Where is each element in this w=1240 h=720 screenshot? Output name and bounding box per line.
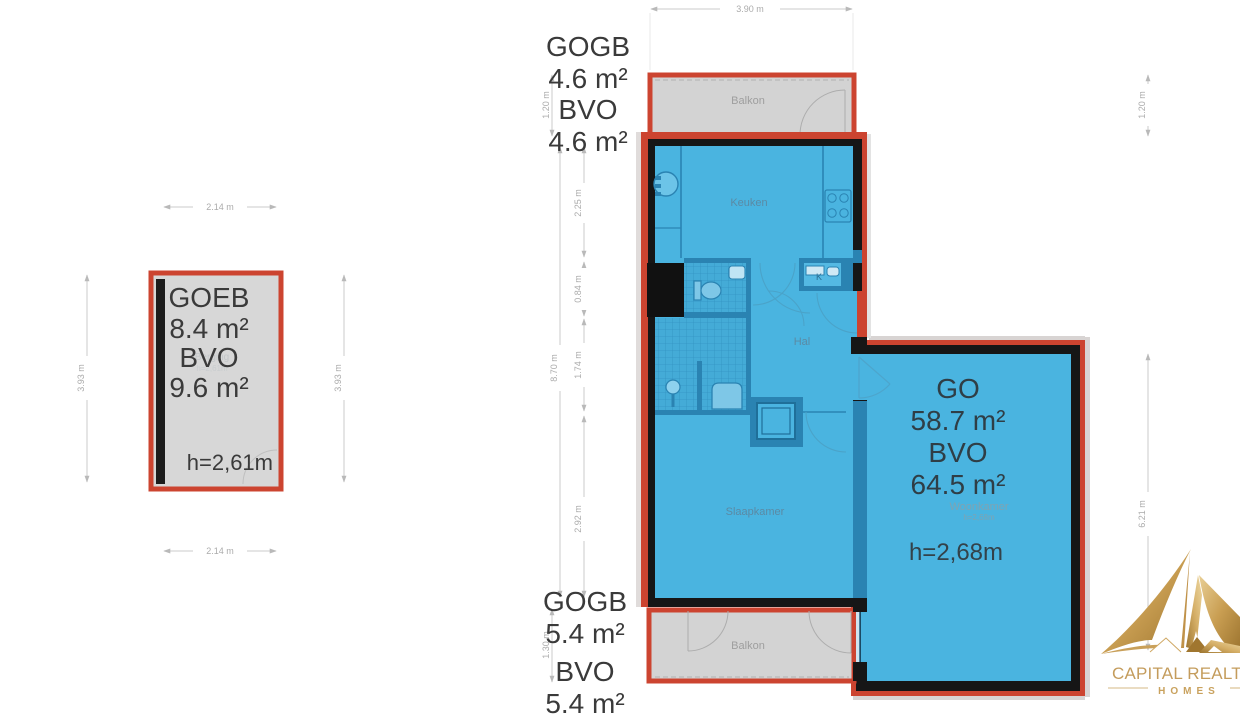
svg-text:BVO: BVO — [179, 342, 238, 373]
svg-text:BVO: BVO — [928, 437, 987, 468]
svg-text:Slaapkamer: Slaapkamer — [726, 506, 785, 518]
svg-text:Balkon: Balkon — [731, 95, 765, 107]
svg-text:6.21 m: 6.21 m — [1137, 500, 1147, 528]
svg-text:4.6 m²: 4.6 m² — [548, 126, 627, 157]
svg-text:GOGB: GOGB — [546, 31, 630, 62]
svg-text:Hal: Hal — [794, 336, 811, 348]
svg-text:8.4 m²: 8.4 m² — [169, 313, 248, 344]
svg-text:h=2,68m: h=2,68m — [909, 539, 1003, 566]
svg-text:Balkon: Balkon — [731, 640, 765, 652]
svg-text:K: K — [816, 272, 822, 282]
svg-text:CAPITAL REALTIES: CAPITAL REALTIES — [1112, 664, 1240, 683]
svg-text:2.92 m: 2.92 m — [573, 505, 583, 533]
svg-text:0.84 m: 0.84 m — [573, 275, 583, 303]
svg-text:2.14 m: 2.14 m — [206, 202, 234, 212]
svg-text:3.93 m: 3.93 m — [333, 364, 343, 392]
svg-text:5.4 m²: 5.4 m² — [545, 618, 624, 649]
svg-text:2.14 m: 2.14 m — [206, 546, 234, 556]
svg-text:64.5 m²: 64.5 m² — [911, 469, 1006, 500]
svg-text:HOMES: HOMES — [1158, 686, 1220, 697]
svg-text:3.90 m: 3.90 m — [736, 4, 764, 14]
svg-text:58.7 m²: 58.7 m² — [911, 405, 1006, 436]
svg-text:1.20 m: 1.20 m — [541, 91, 551, 119]
svg-text:3.93 m: 3.93 m — [76, 364, 86, 392]
svg-text:h=2,61m: h=2,61m — [187, 450, 273, 475]
svg-text:Keuken: Keuken — [730, 197, 767, 209]
svg-text:GOEB: GOEB — [169, 282, 250, 313]
svg-text:GO: GO — [936, 373, 980, 404]
svg-text:8.70 m: 8.70 m — [549, 354, 559, 382]
svg-text:2.25 m: 2.25 m — [573, 189, 583, 217]
svg-text:4.6 m²: 4.6 m² — [548, 63, 627, 94]
svg-text:h=2,68m: h=2,68m — [963, 513, 995, 522]
svg-text:Woonkamer: Woonkamer — [949, 501, 1008, 513]
svg-text:9.6 m²: 9.6 m² — [169, 372, 248, 403]
svg-text:1.20 m: 1.20 m — [1137, 91, 1147, 119]
svg-text:5.4 m²: 5.4 m² — [545, 688, 624, 719]
svg-text:1.74 m: 1.74 m — [573, 351, 583, 379]
svg-text:GOGB: GOGB — [543, 586, 627, 617]
svg-text:BVO: BVO — [555, 656, 614, 687]
svg-text:BVO: BVO — [558, 94, 617, 125]
